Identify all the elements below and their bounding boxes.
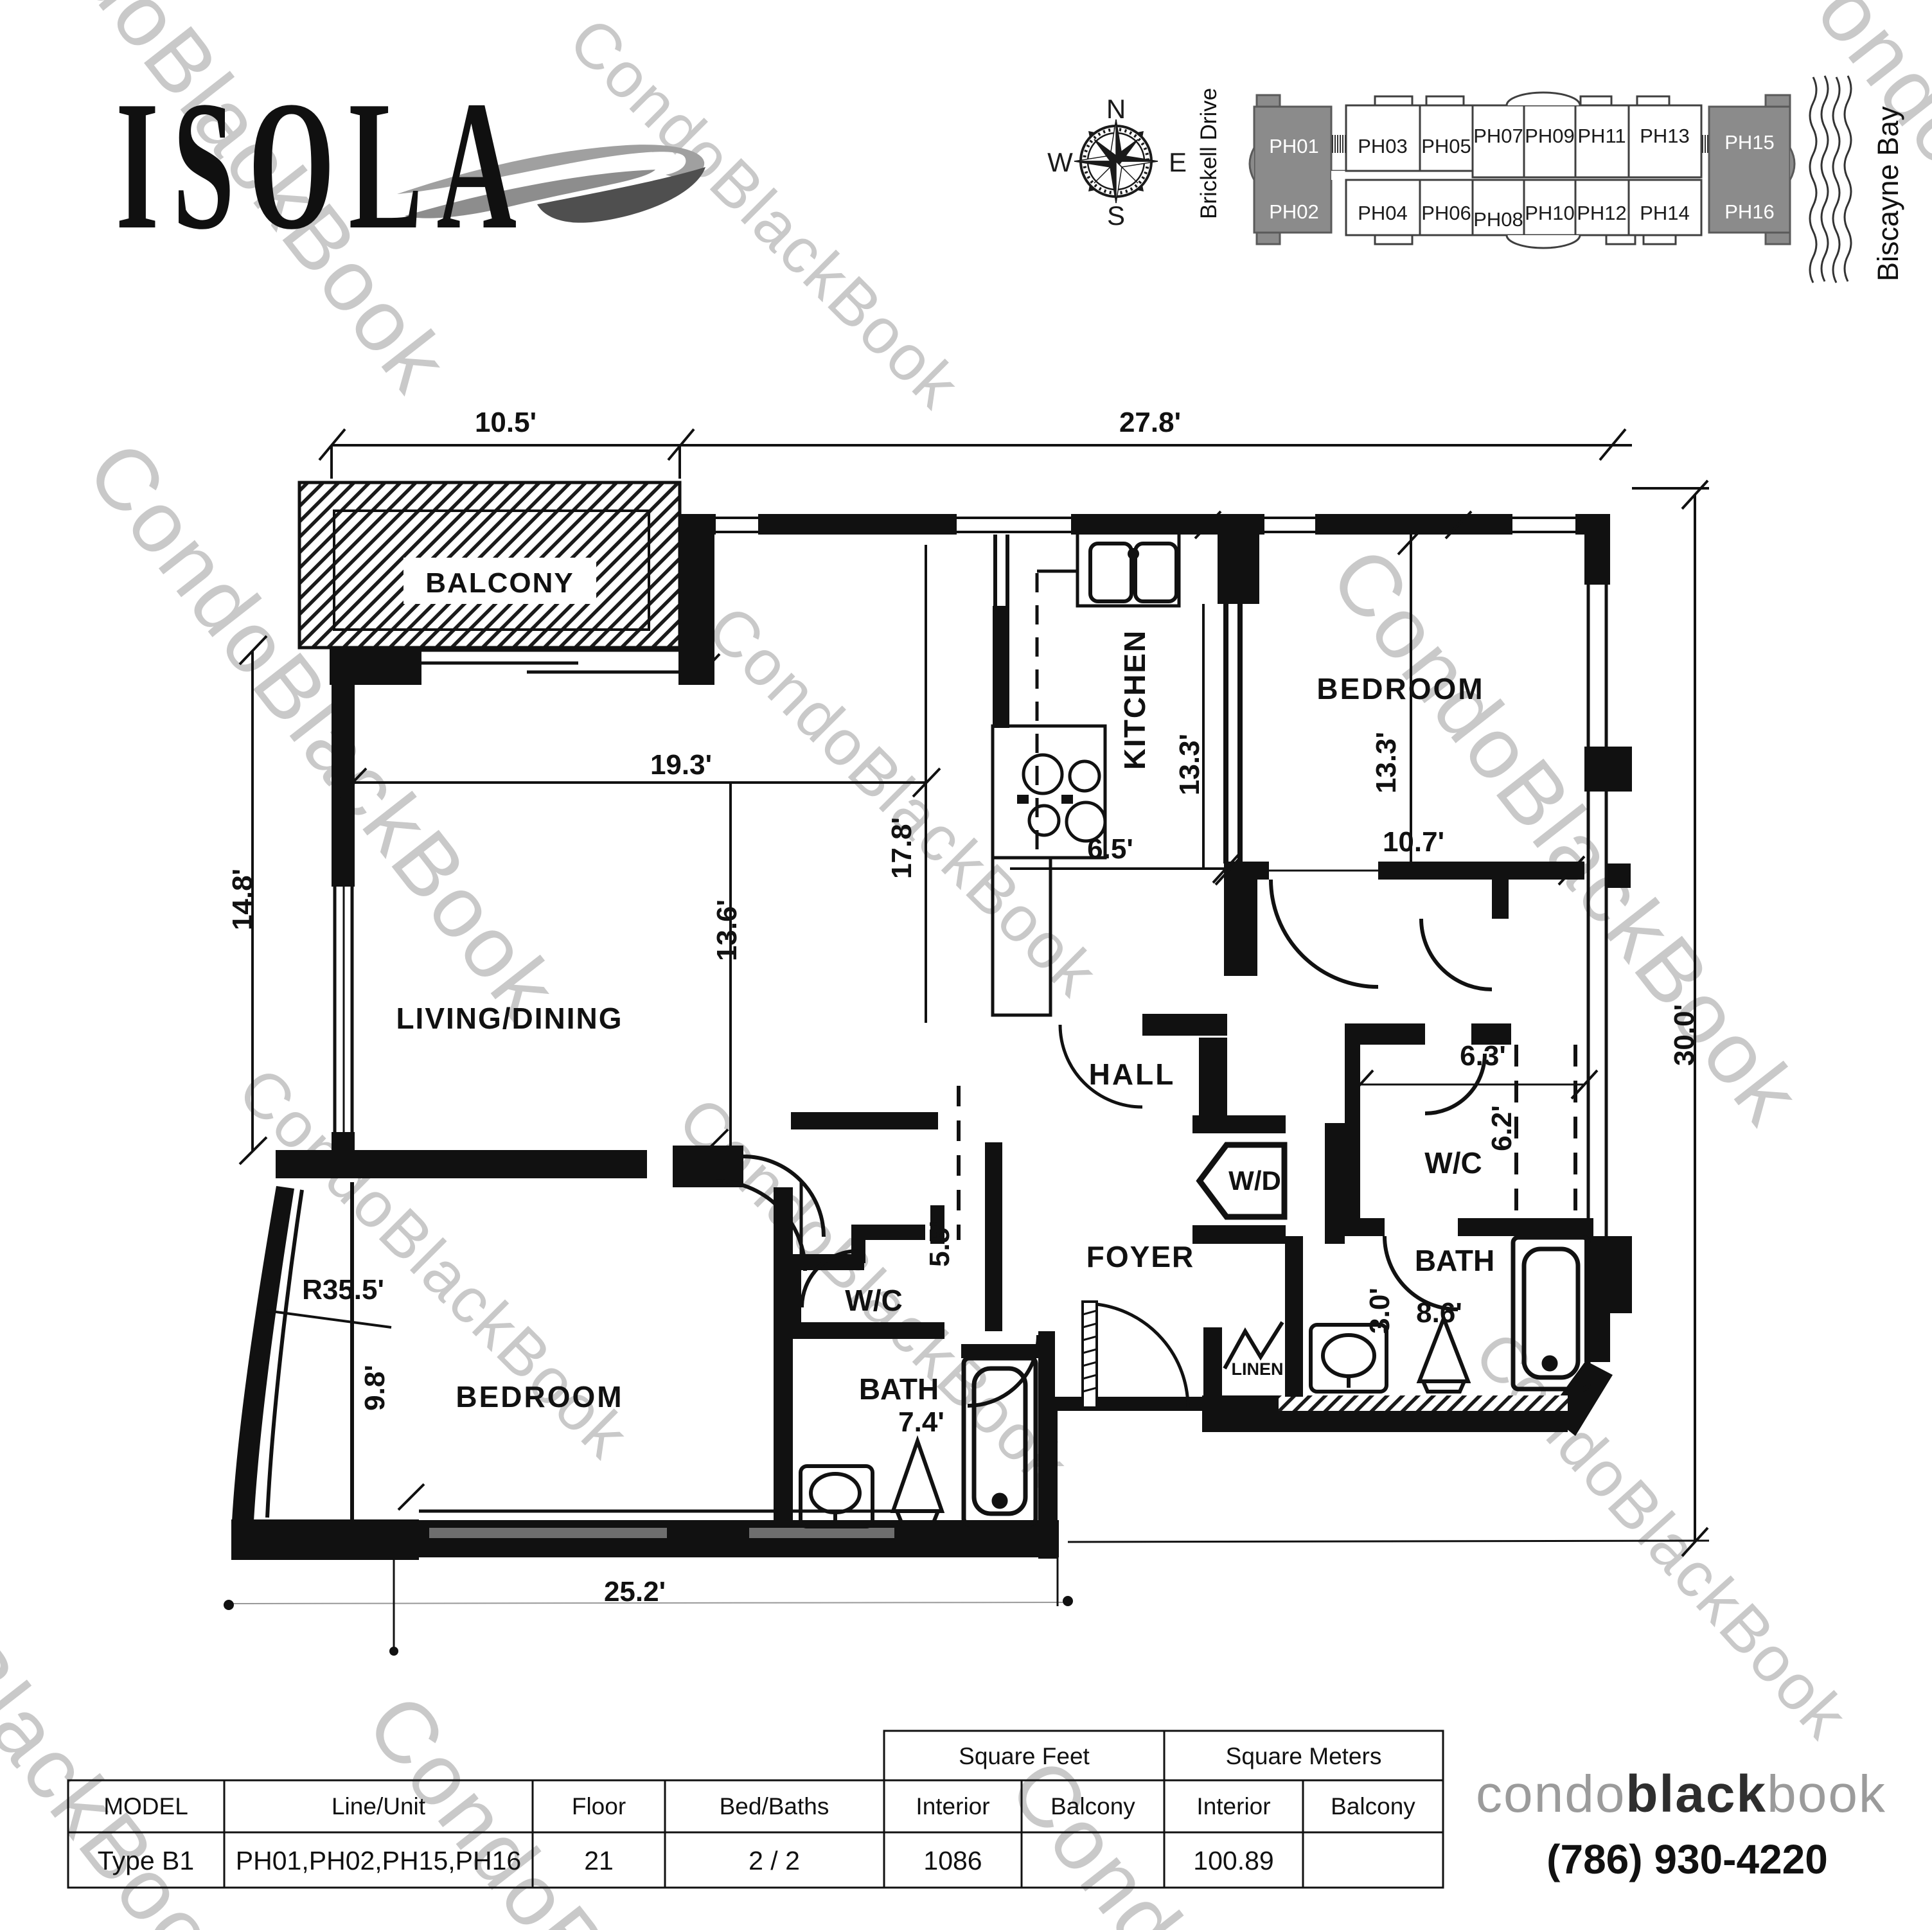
svg-text:17.8': 17.8' [886,817,917,879]
svg-text:PH12: PH12 [1577,202,1627,224]
svg-text:BEDROOM: BEDROOM [1316,672,1484,705]
svg-text:Interior: Interior [1196,1793,1270,1819]
svg-text:PH02: PH02 [1269,200,1319,223]
svg-text:100.89: 100.89 [1193,1846,1273,1875]
svg-text:PH01,PH02,PH15,PH16: PH01,PH02,PH15,PH16 [236,1846,521,1875]
svg-text:PH01: PH01 [1269,135,1319,157]
svg-text:PH07: PH07 [1473,125,1523,147]
svg-text:1086: 1086 [923,1846,982,1875]
svg-text:6.5': 6.5' [1087,833,1133,865]
svg-text:PH04: PH04 [1358,202,1408,224]
svg-text:5.5': 5.5' [924,1221,955,1267]
svg-text:8.6': 8.6' [1416,1297,1462,1329]
svg-text:10.5': 10.5' [475,407,536,438]
svg-text:condoblackbook: condoblackbook [1476,1765,1886,1823]
svg-text:W/D: W/D [1228,1165,1281,1196]
svg-text:9.8': 9.8' [359,1365,391,1411]
svg-text:LIVING/DINING: LIVING/DINING [396,1002,623,1035]
svg-text:W: W [1047,147,1073,177]
svg-text:BATH: BATH [1415,1244,1494,1277]
svg-text:W/C: W/C [845,1284,902,1317]
svg-text:6.3': 6.3' [1460,1040,1506,1072]
svg-text:Floor: Floor [572,1793,626,1819]
svg-text:Balcony: Balcony [1050,1793,1135,1819]
svg-text:R35.5': R35.5' [302,1274,384,1306]
svg-text:Square Feet: Square Feet [959,1743,1090,1769]
svg-text:W/C: W/C [1424,1146,1482,1180]
svg-text:PH14: PH14 [1640,202,1690,224]
svg-text:Brickell Drive: Brickell Drive [1196,88,1221,219]
svg-text:HALL: HALL [1089,1058,1176,1091]
svg-text:13.6': 13.6' [711,899,743,961]
svg-text:19.3': 19.3' [650,749,712,781]
svg-text:E: E [1169,147,1187,177]
svg-text:N: N [1106,94,1126,124]
svg-text:PH16: PH16 [1724,200,1775,223]
svg-text:13.3': 13.3' [1174,734,1205,795]
svg-text:PH10: PH10 [1525,202,1575,224]
svg-text:BALCONY: BALCONY [425,567,574,599]
svg-text:PH09: PH09 [1525,125,1575,147]
svg-text:(786) 930-4220: (786) 930-4220 [1546,1836,1828,1882]
svg-text:21: 21 [584,1846,614,1875]
svg-text:PH03: PH03 [1358,135,1408,157]
svg-text:3.0': 3.0' [1364,1288,1396,1334]
svg-text:6.2': 6.2' [1486,1105,1518,1151]
svg-text:PH11: PH11 [1577,125,1626,147]
svg-text:Line/Unit: Line/Unit [332,1793,426,1819]
svg-text:Biscayne Bay: Biscayne Bay [1872,106,1904,281]
svg-text:10.7': 10.7' [1383,826,1444,858]
svg-text:PH15: PH15 [1724,131,1775,154]
svg-text:PH13: PH13 [1640,125,1690,147]
svg-text:PH05: PH05 [1421,135,1471,157]
svg-text:MODEL: MODEL [103,1793,188,1819]
svg-text:PH08: PH08 [1473,208,1523,231]
svg-text:Bed/Baths: Bed/Baths [720,1793,829,1819]
svg-text:ISOLA: ISOLA [116,63,531,268]
svg-text:FOYER: FOYER [1086,1240,1194,1273]
svg-text:Interior: Interior [916,1793,989,1819]
svg-text:KITCHEN: KITCHEN [1118,630,1151,770]
svg-text:Balcony: Balcony [1331,1793,1415,1819]
svg-text:2 / 2: 2 / 2 [749,1846,800,1875]
svg-text:Type B1: Type B1 [98,1846,194,1875]
svg-text:PH06: PH06 [1421,202,1471,224]
svg-text:Square Meters: Square Meters [1226,1743,1382,1769]
svg-text:27.8': 27.8' [1119,407,1181,438]
svg-text:S: S [1107,200,1125,231]
svg-text:7.4': 7.4' [898,1406,944,1438]
svg-text:BATH: BATH [859,1372,939,1406]
svg-text:LINEN: LINEN [1232,1359,1284,1379]
svg-text:13.3': 13.3' [1370,732,1402,793]
svg-text:BEDROOM: BEDROOM [456,1380,623,1413]
